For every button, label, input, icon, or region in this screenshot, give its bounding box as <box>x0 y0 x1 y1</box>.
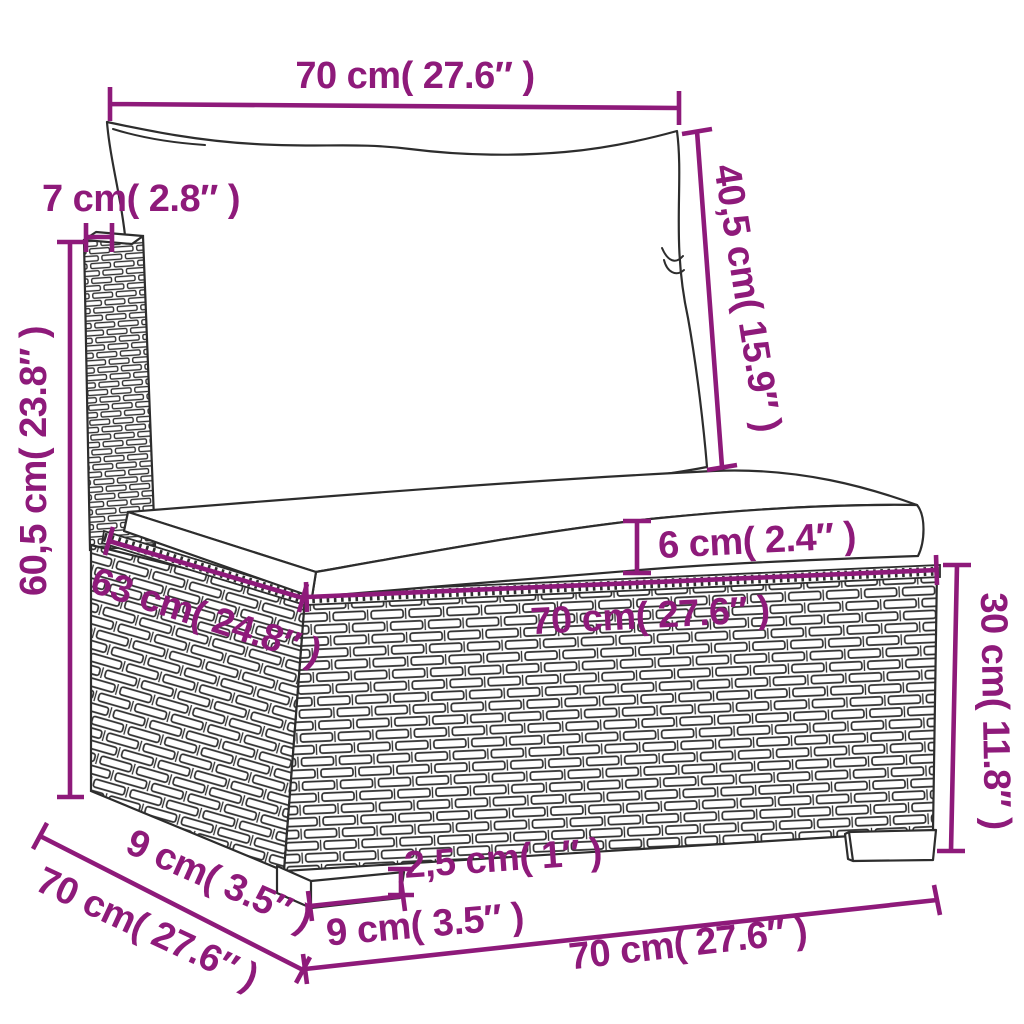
dim-line-base-height <box>937 565 971 851</box>
dim-label-base-height: 30 cm( 11.8″ ) <box>972 592 1018 830</box>
back-panel <box>84 236 155 550</box>
dim-label-back-panel-thickness: 7 cm( 2.8″ ) <box>42 178 240 220</box>
dim-line-total-height <box>57 242 84 797</box>
dim-label-total-height: 60,5 cm( 23.8″ ) <box>13 326 55 596</box>
sofa-line-art <box>84 122 940 908</box>
front-right-leg <box>845 830 936 861</box>
dim-label-back-width: 70 cm( 27.6″ ) <box>295 55 534 97</box>
dimension-diagram: 70 cm( 27.6″ ) 40,5 cm( 15.9″ ) 7 cm( 2.… <box>0 0 1024 1024</box>
diagram-canvas: 70 cm( 27.6″ ) 40,5 cm( 15.9″ ) 7 cm( 2.… <box>0 0 1024 1024</box>
dim-label-leg-width: 9 cm( 3.5″ ) <box>325 895 526 954</box>
dim-label-bottom-width: 70 cm( 27.6″ ) <box>567 910 810 979</box>
